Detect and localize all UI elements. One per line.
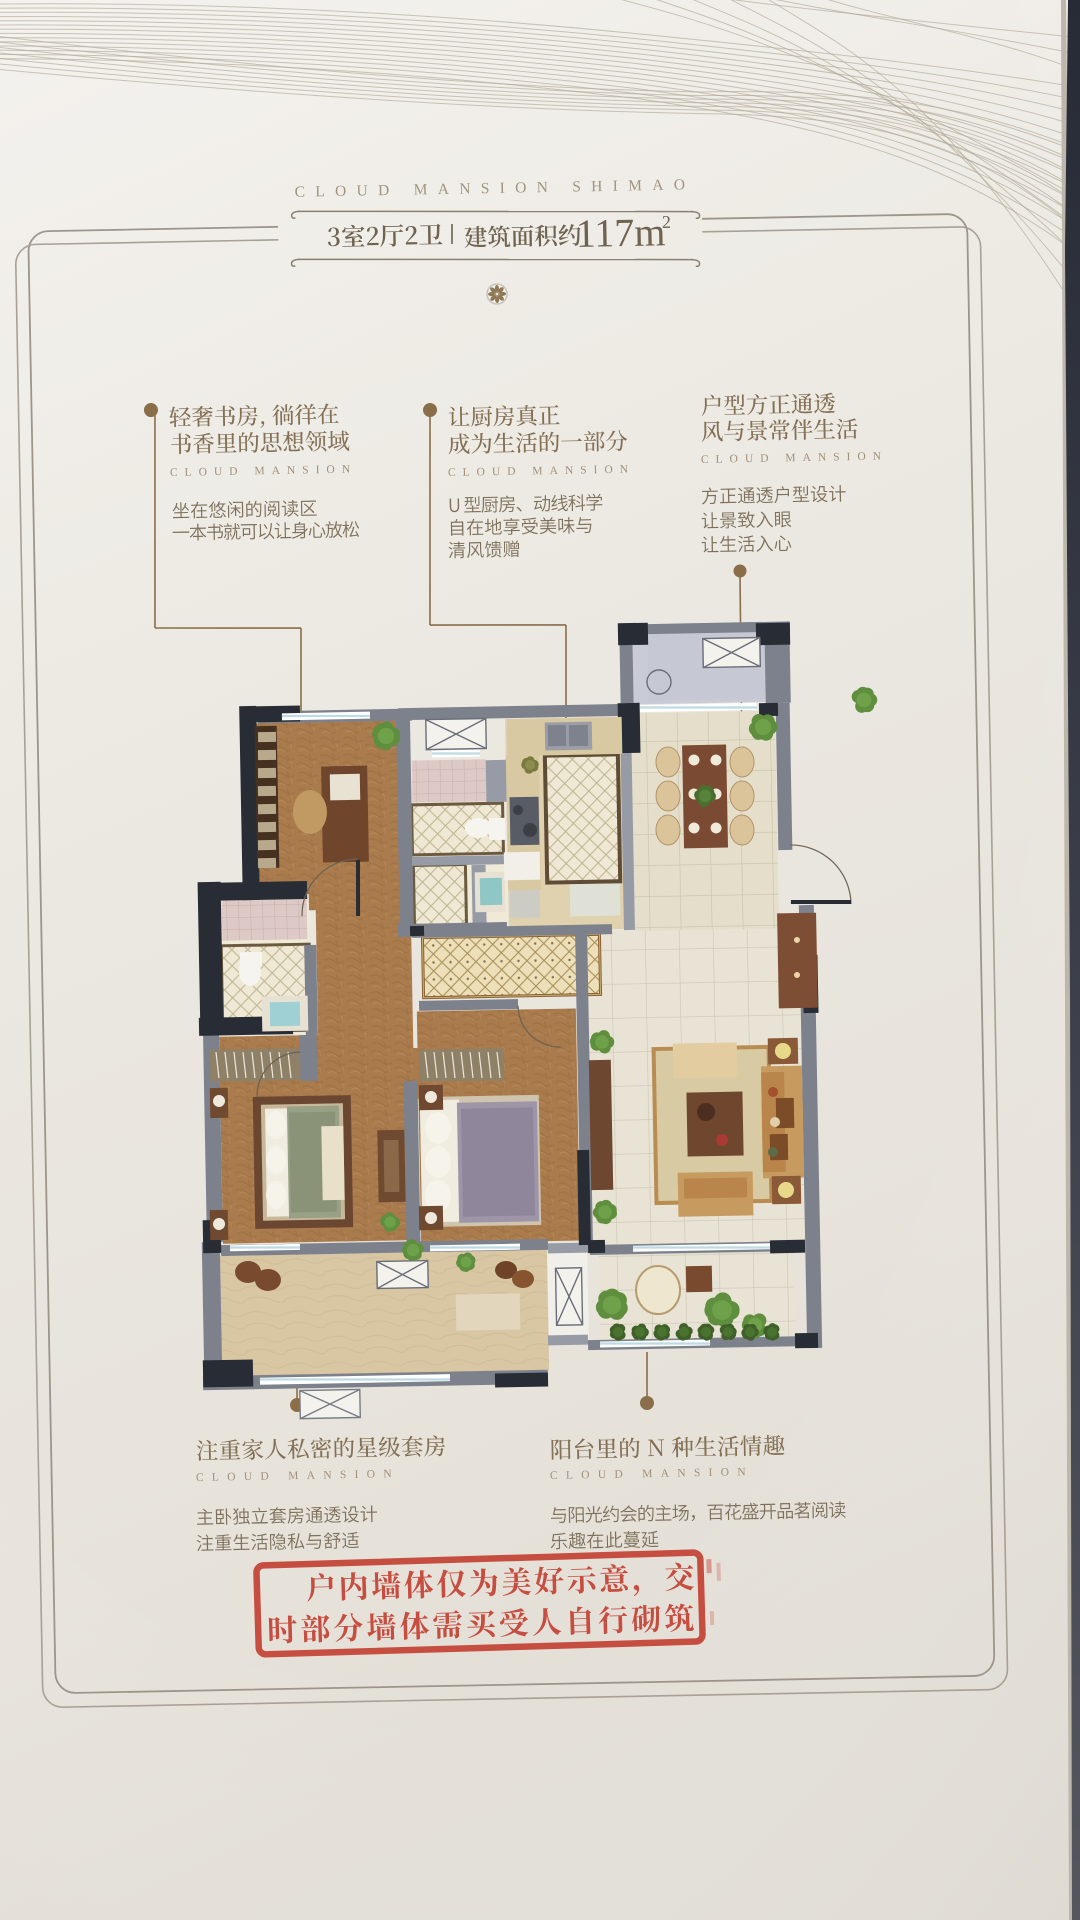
svg-text:2: 2 [662, 212, 671, 232]
svg-text:117m: 117m [575, 209, 665, 256]
